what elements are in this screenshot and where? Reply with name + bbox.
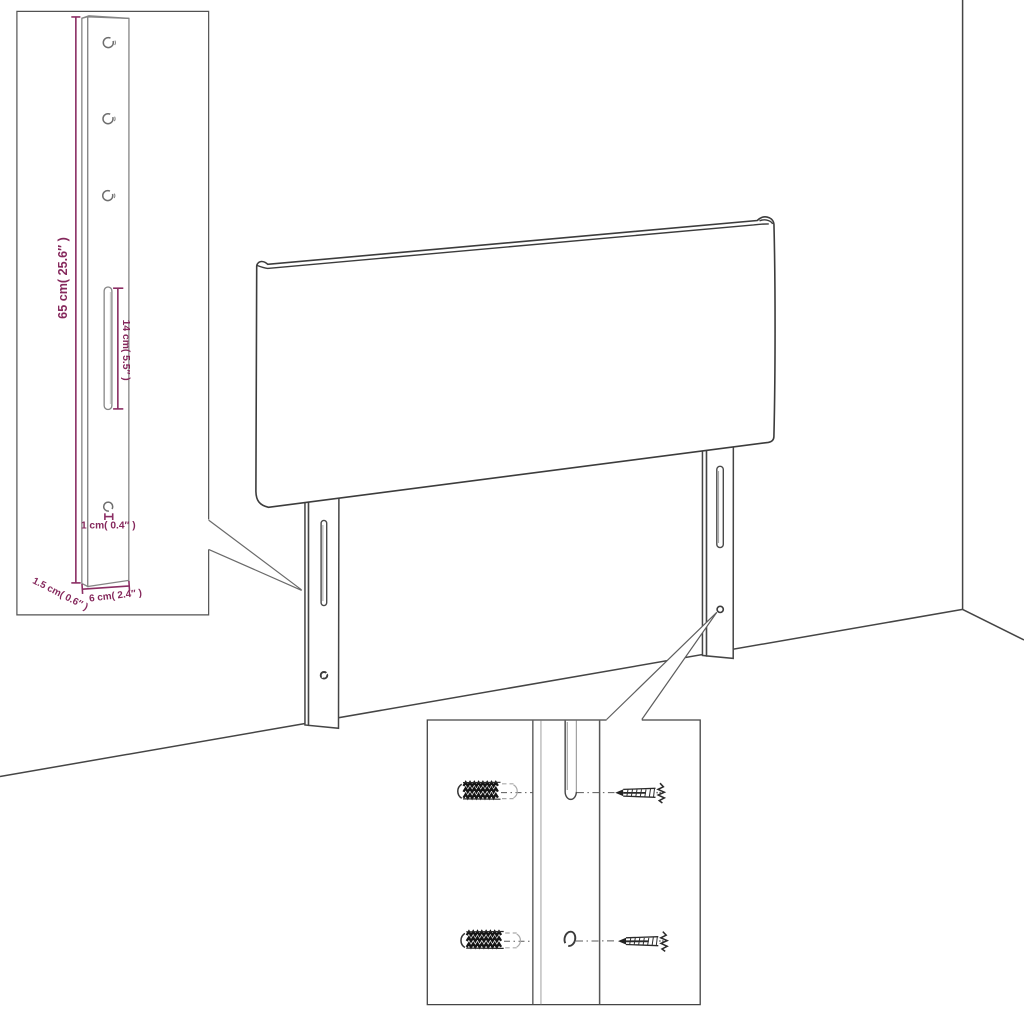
svg-text:65 cm( 25.6″ ): 65 cm( 25.6″ )	[56, 237, 70, 319]
svg-text:14 cm( 5.5″ ): 14 cm( 5.5″ )	[120, 320, 131, 381]
svg-text:1 cm( 0.4″ ): 1 cm( 0.4″ )	[81, 520, 136, 531]
